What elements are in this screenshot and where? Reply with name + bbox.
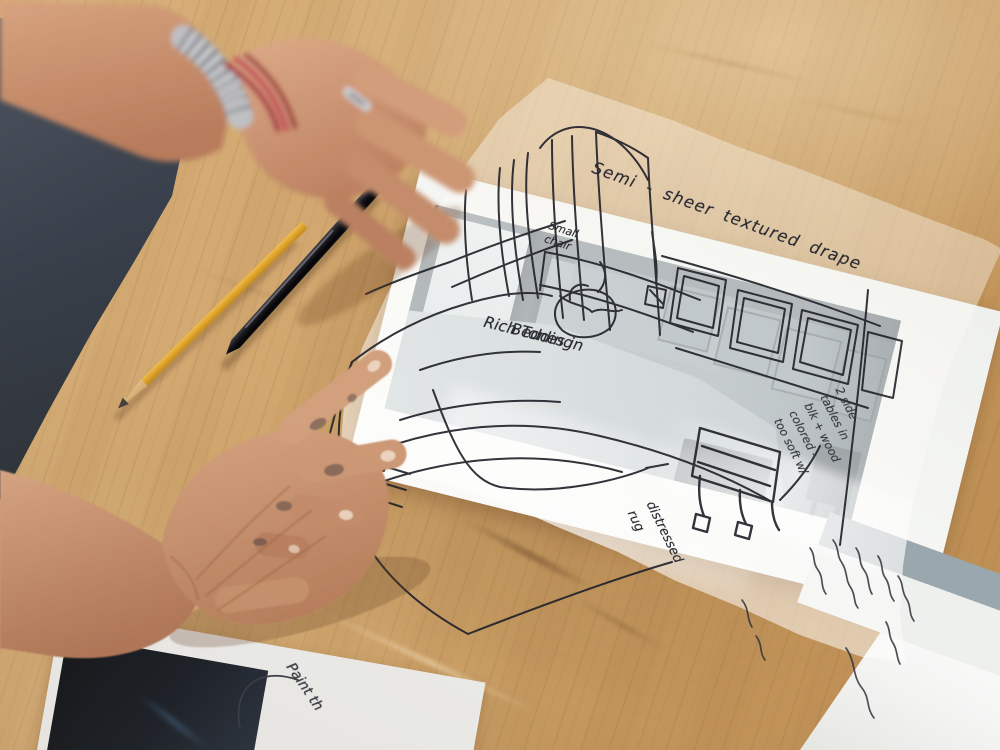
photo-scene: Semi - sheer textured drape Smallchair R… [0,0,1000,750]
right-hand-reaching [0,0,1000,750]
right-forearm [0,0,228,162]
right-palm [234,38,426,198]
